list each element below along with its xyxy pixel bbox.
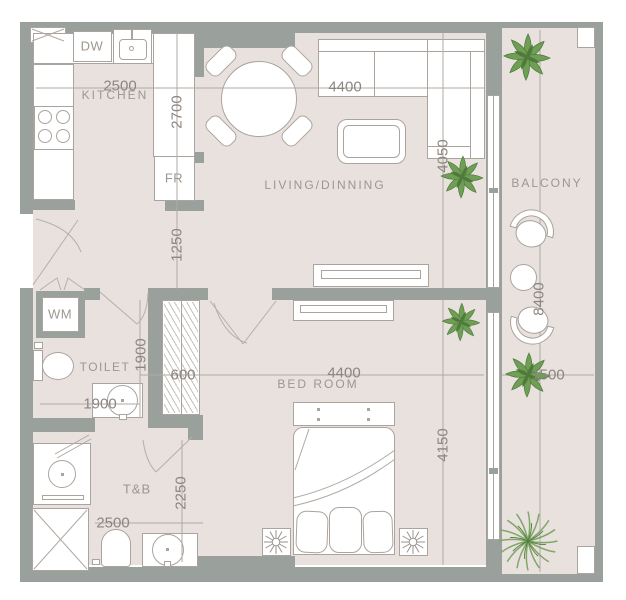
dim-tnb-width: 2500 bbox=[96, 515, 129, 532]
dim-kitchen-width: 2500 bbox=[103, 78, 136, 95]
window-bedroom-mullion bbox=[493, 312, 494, 540]
bench-dot bbox=[367, 418, 370, 421]
dishwasher-label: DW bbox=[81, 39, 104, 54]
washer-label: WM bbox=[48, 307, 72, 322]
bed-pillow bbox=[295, 510, 328, 553]
sink-faucet bbox=[131, 29, 133, 39]
sofa-back-line bbox=[318, 51, 485, 52]
divider-wall-living-bedroom bbox=[272, 288, 502, 300]
shower-tray bbox=[32, 508, 89, 571]
toilet-tnb-divider bbox=[33, 418, 95, 432]
wardrobe-wall-left bbox=[148, 288, 162, 420]
toilet-tnb bbox=[101, 529, 131, 567]
dim-balcony-length: 8400 bbox=[531, 282, 548, 315]
nightstand-right bbox=[399, 528, 428, 556]
balcony-wall-right bbox=[595, 22, 603, 582]
nightstand-left bbox=[262, 528, 291, 556]
tv-console-living-inner bbox=[321, 270, 421, 279]
burner bbox=[56, 129, 70, 143]
dim-living-width: 4400 bbox=[328, 79, 361, 96]
dim-toilet-depth: 1900 bbox=[133, 338, 150, 371]
sofa-arm-line bbox=[470, 51, 471, 158]
living-label: LIVING/DINNING bbox=[264, 178, 385, 192]
dim-living-depth: 4050 bbox=[435, 139, 452, 172]
wardrobe-rail bbox=[181, 300, 182, 415]
bench-dot bbox=[317, 408, 320, 411]
basin-faucet bbox=[119, 414, 127, 420]
tnb-door-jamb bbox=[188, 428, 203, 440]
toilet-bowl bbox=[42, 352, 74, 380]
kitchen-wall-stub-mid bbox=[195, 152, 204, 163]
dining-table bbox=[221, 61, 297, 137]
dim-kitchen-depth: 2700 bbox=[169, 95, 186, 128]
dim-toilet-width: 1900 bbox=[83, 396, 116, 413]
window-bedroom-break bbox=[489, 468, 498, 474]
sofa-cushion-line bbox=[374, 51, 375, 97]
burner bbox=[38, 110, 52, 124]
bed-pillow bbox=[329, 507, 362, 553]
tv-console-bedroom-inner bbox=[300, 305, 387, 313]
coffee-table-inner bbox=[343, 125, 400, 158]
balcony-label: BALCONY bbox=[511, 176, 582, 190]
floor-plan: KITCHEN LIVING/DINNING BALCONY TOILET BE… bbox=[0, 0, 626, 600]
wardrobe-hangers bbox=[182, 302, 198, 413]
balcony-floor bbox=[502, 27, 595, 574]
column-bottom bbox=[185, 556, 295, 582]
fridge-label: FR bbox=[165, 171, 183, 186]
bed-bench bbox=[293, 402, 395, 426]
kitchen-wall-stub-top bbox=[195, 33, 204, 77]
dim-bedroom-depth: 4150 bbox=[435, 428, 452, 461]
bench-dot bbox=[367, 408, 370, 411]
balcony-corner-bottom bbox=[577, 546, 595, 574]
bench-dot bbox=[317, 418, 320, 421]
wardrobe-wall-bottom bbox=[148, 415, 203, 428]
bath-mat bbox=[42, 495, 84, 500]
dim-wardrobe-depth: 600 bbox=[170, 367, 195, 384]
dim-balcony-width: 1500 bbox=[531, 367, 564, 384]
basin-drain bbox=[121, 399, 124, 402]
burner bbox=[38, 129, 52, 143]
entry-door-opening bbox=[20, 214, 33, 288]
toilet-wall-pier bbox=[84, 288, 100, 300]
sofa-cushion-line bbox=[427, 51, 428, 97]
shower-drain-dot bbox=[61, 473, 64, 476]
dim-bedroom-width: 4400 bbox=[327, 365, 360, 382]
exterior-wall-left bbox=[20, 22, 33, 582]
tap-mark bbox=[92, 559, 100, 565]
bed-pillow bbox=[362, 510, 393, 553]
wardrobe-hangers bbox=[164, 302, 180, 413]
dim-hallway-width: 1250 bbox=[169, 228, 186, 261]
vestibule-wall-stub bbox=[32, 200, 75, 210]
basin-drain bbox=[166, 548, 169, 551]
toilet-label: TOILET bbox=[80, 360, 131, 374]
dim-tnb-depth: 2250 bbox=[173, 476, 190, 509]
tnb-label: T&B bbox=[123, 482, 151, 497]
flush-plate bbox=[34, 342, 43, 349]
balcony-wall-bottom bbox=[502, 574, 603, 582]
burner bbox=[56, 110, 70, 124]
window-living-break bbox=[489, 188, 498, 193]
sink-drain bbox=[129, 46, 134, 51]
balcony-corner-top bbox=[577, 27, 595, 48]
kitchen-wall-stub-low bbox=[165, 200, 204, 211]
basin-faucet bbox=[164, 561, 171, 567]
